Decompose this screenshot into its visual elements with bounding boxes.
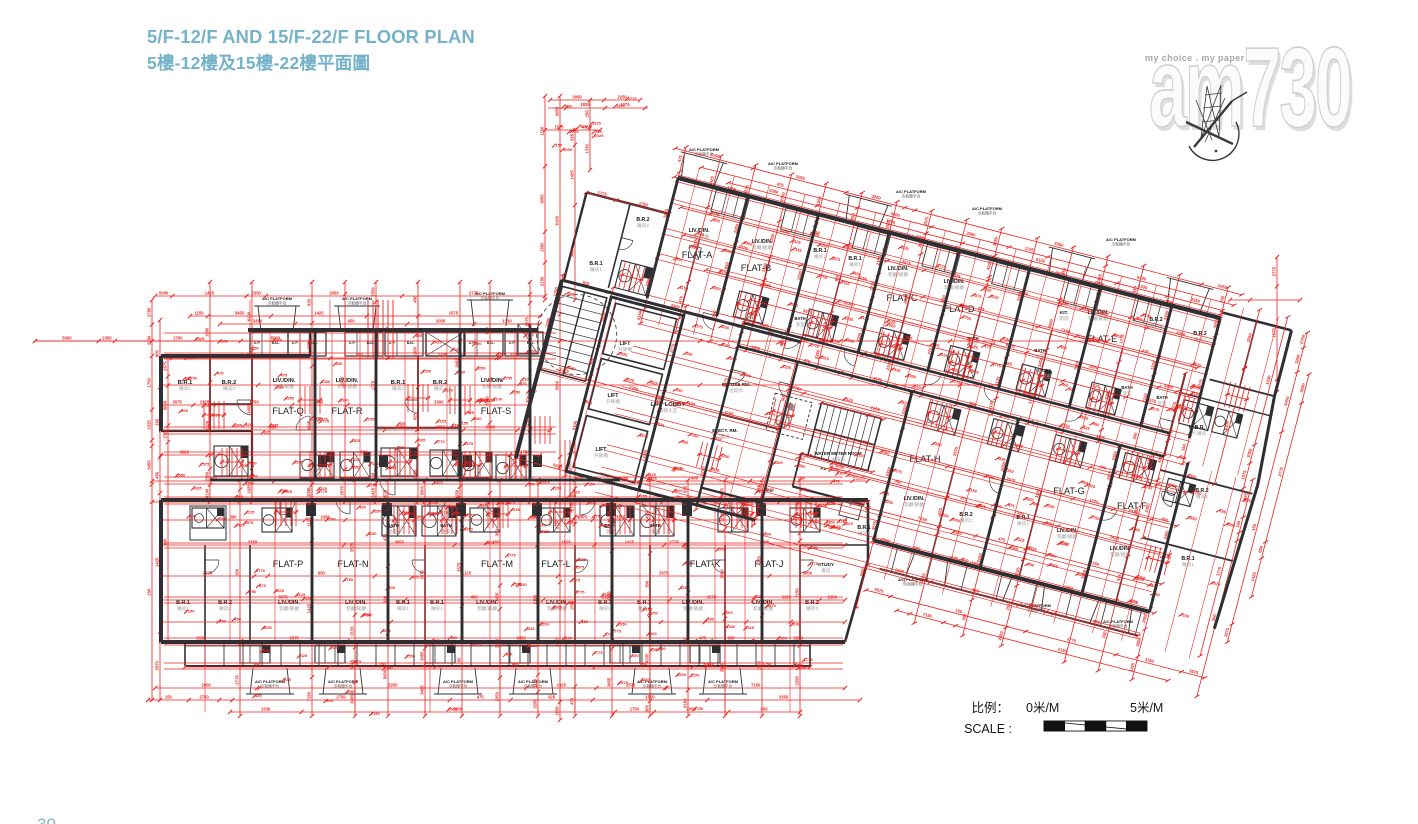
svg-text:客廳/飯廳: 客廳/飯廳 (1057, 533, 1077, 540)
svg-text:925: 925 (284, 677, 291, 682)
svg-text:3575: 3575 (349, 542, 354, 552)
svg-text:2775: 2775 (256, 568, 266, 573)
svg-text:1825: 1825 (195, 336, 205, 341)
svg-text:1550: 1550 (351, 464, 361, 469)
svg-text:2575: 2575 (200, 462, 210, 467)
svg-text:1750: 1750 (344, 577, 354, 582)
svg-text:1750: 1750 (249, 399, 259, 404)
svg-text:客廳/飯廳: 客廳/飯廳 (888, 271, 908, 278)
svg-text:BAL.: BAL. (487, 341, 495, 345)
svg-text:300: 300 (644, 580, 649, 588)
svg-text:FLAT-Q: FLAT-Q (272, 406, 303, 416)
svg-text:2575: 2575 (571, 577, 581, 582)
svg-text:2575: 2575 (524, 316, 529, 326)
svg-text:6100: 6100 (246, 311, 251, 321)
svg-text:2050: 2050 (436, 318, 446, 323)
svg-text:1425: 1425 (405, 511, 415, 516)
svg-text:1550: 1550 (204, 327, 209, 337)
svg-text:450: 450 (412, 295, 417, 303)
svg-text:1150: 1150 (249, 474, 258, 479)
svg-text:1550: 1550 (406, 654, 416, 659)
svg-text:4335: 4335 (306, 420, 311, 430)
svg-text:客廳/飯廳: 客廳/飯廳 (279, 605, 299, 612)
svg-text:3575: 3575 (466, 513, 476, 518)
svg-text:450: 450 (219, 618, 226, 623)
svg-text:A/C PLATFORM: A/C PLATFORM (972, 206, 1003, 211)
svg-text:925: 925 (412, 412, 417, 420)
svg-text:1425: 1425 (433, 340, 443, 345)
svg-text:5000: 5000 (724, 610, 734, 615)
svg-text:3250: 3250 (285, 395, 295, 400)
svg-text:3250: 3250 (477, 366, 487, 371)
svg-text:浴室: 浴室 (388, 528, 398, 535)
svg-text:3575: 3575 (659, 570, 669, 575)
svg-text:2750: 2750 (146, 307, 151, 317)
svg-text:3250: 3250 (382, 628, 392, 633)
svg-text:300: 300 (494, 529, 499, 537)
svg-text:3300: 3300 (434, 399, 444, 404)
svg-text:1775: 1775 (507, 552, 517, 557)
svg-text:3350: 3350 (346, 689, 356, 694)
svg-text:300: 300 (506, 652, 513, 657)
svg-text:U.P.: U.P. (254, 341, 261, 345)
svg-text:睡房1: 睡房1 (392, 385, 404, 392)
svg-text:1775: 1775 (318, 489, 328, 494)
svg-text:睡房2: 睡房2 (637, 222, 649, 229)
svg-text:升降機: 升降機 (594, 452, 608, 459)
svg-text:1825: 1825 (580, 102, 590, 107)
svg-text:30: 30 (37, 815, 56, 824)
svg-text:3300: 3300 (273, 337, 283, 342)
svg-text:1825: 1825 (351, 438, 361, 443)
svg-text:900: 900 (359, 504, 366, 509)
svg-text:1550: 1550 (412, 346, 417, 356)
svg-text:925: 925 (245, 422, 252, 427)
svg-text:1150: 1150 (444, 387, 453, 392)
svg-text:2325: 2325 (528, 643, 538, 648)
svg-text:3455: 3455 (540, 529, 550, 534)
svg-text:2775: 2775 (594, 650, 604, 655)
svg-text:5000: 5000 (382, 669, 387, 679)
svg-text:A/C PLATFORM: A/C PLATFORM (262, 296, 293, 301)
svg-text:2750: 2750 (173, 335, 183, 340)
svg-text:925: 925 (580, 124, 587, 129)
svg-text:0米/M: 0米/M (1026, 701, 1059, 715)
svg-text:FLAT-P: FLAT-P (273, 559, 303, 569)
svg-text:900: 900 (253, 661, 261, 666)
svg-text:2155: 2155 (577, 557, 587, 562)
svg-text:3455: 3455 (448, 706, 458, 711)
svg-text:A/C PLATFORM: A/C PLATFORM (896, 189, 927, 194)
svg-text:3455: 3455 (419, 685, 424, 695)
svg-text:3350: 3350 (779, 694, 789, 699)
svg-text:5000: 5000 (803, 570, 813, 575)
svg-text:150: 150 (234, 568, 239, 576)
svg-text:睡房1: 睡房1 (590, 266, 602, 273)
svg-text:BATH: BATH (794, 316, 805, 321)
svg-text:2575: 2575 (574, 514, 584, 519)
svg-text:475: 475 (477, 694, 485, 699)
svg-text:3050: 3050 (479, 397, 489, 402)
svg-text:1825: 1825 (561, 539, 571, 544)
svg-text:450: 450 (348, 318, 356, 323)
svg-text:1825: 1825 (275, 588, 285, 593)
svg-text:A/C PLATFORM: A/C PLATFORM (1106, 237, 1137, 242)
svg-text:BATH: BATH (1121, 385, 1132, 390)
svg-text:475: 475 (569, 697, 574, 705)
svg-text:150: 150 (632, 653, 639, 658)
svg-text:3250: 3250 (532, 699, 537, 709)
svg-text:2155: 2155 (643, 607, 653, 612)
svg-text:5/F-12/F AND 15/F-22/F FLOOR P: 5/F-12/F AND 15/F-22/F FLOOR PLAN (147, 26, 475, 47)
svg-text:300: 300 (189, 514, 196, 519)
svg-text:2350: 2350 (370, 287, 375, 297)
svg-text:3575: 3575 (339, 485, 344, 495)
svg-text:6100: 6100 (554, 215, 559, 225)
svg-text:2250: 2250 (794, 675, 799, 685)
svg-text:150: 150 (399, 421, 406, 426)
svg-text:1125: 1125 (246, 510, 255, 515)
svg-text:150: 150 (556, 143, 563, 148)
svg-text:2155: 2155 (437, 418, 447, 423)
svg-text:2775: 2775 (809, 561, 819, 566)
svg-text:2350: 2350 (422, 369, 432, 374)
svg-text:1825: 1825 (647, 472, 657, 477)
svg-text:2155: 2155 (511, 507, 521, 512)
svg-text:2775: 2775 (1271, 266, 1276, 276)
svg-text:3300: 3300 (473, 416, 483, 421)
svg-text:2155: 2155 (638, 494, 648, 499)
svg-text:7150: 7150 (794, 588, 799, 598)
svg-text:1550: 1550 (540, 622, 550, 627)
svg-text:3575: 3575 (767, 603, 777, 608)
svg-text:2155: 2155 (349, 626, 354, 636)
svg-text:3350: 3350 (616, 514, 626, 519)
svg-text:6100: 6100 (648, 631, 658, 636)
svg-text:475: 475 (280, 372, 287, 377)
svg-text:客廳/飯廳: 客廳/飯廳 (683, 605, 703, 612)
svg-text:1575: 1575 (449, 310, 459, 315)
svg-text:3300: 3300 (497, 351, 507, 356)
svg-text:450: 450 (154, 471, 159, 479)
svg-text:2250: 2250 (618, 622, 628, 627)
svg-text:3300: 3300 (233, 422, 243, 427)
svg-text:書房: 書房 (821, 567, 831, 574)
svg-text:am730: am730 (1149, 24, 1351, 150)
svg-text:1775: 1775 (436, 439, 446, 444)
svg-text:3455: 3455 (349, 694, 354, 704)
svg-text:冷氣機平台: 冷氣機平台 (902, 194, 921, 199)
svg-text:150: 150 (154, 418, 159, 426)
svg-text:2325: 2325 (595, 133, 605, 138)
svg-text:2250: 2250 (384, 665, 394, 670)
svg-text:300: 300 (707, 617, 714, 622)
svg-text:1575: 1575 (554, 124, 564, 129)
svg-text:1125: 1125 (839, 518, 848, 523)
svg-text:2775: 2775 (576, 590, 586, 595)
svg-text:925: 925 (306, 298, 311, 306)
svg-text:300: 300 (230, 514, 238, 519)
svg-text:客廳/飯廳: 客廳/飯廳 (482, 383, 502, 390)
svg-text:150: 150 (252, 346, 259, 351)
svg-text:U.P.: U.P. (349, 341, 356, 345)
svg-text:5000: 5000 (62, 335, 72, 340)
svg-text:150: 150 (165, 694, 173, 699)
svg-text:7150: 7150 (306, 691, 311, 701)
svg-text:450: 450 (708, 663, 715, 668)
svg-text:KIT.: KIT. (1060, 310, 1068, 315)
svg-text:冷氣機平台: 冷氣機平台 (1112, 242, 1131, 247)
svg-text:BAL.: BAL. (407, 341, 415, 345)
svg-text:650: 650 (475, 341, 482, 346)
svg-text:2575: 2575 (162, 361, 167, 371)
svg-text:150: 150 (581, 619, 588, 624)
svg-text:3575: 3575 (553, 604, 563, 609)
svg-text:3250: 3250 (373, 509, 383, 514)
svg-text:2775: 2775 (669, 539, 679, 544)
svg-text:4335: 4335 (387, 465, 397, 470)
svg-text:3350: 3350 (567, 520, 577, 525)
svg-text:925: 925 (548, 694, 556, 699)
svg-text:1125: 1125 (532, 678, 537, 688)
svg-text:2350: 2350 (651, 647, 661, 652)
svg-text:650: 650 (185, 376, 192, 381)
svg-text:3250: 3250 (677, 672, 687, 677)
svg-text:1575: 1575 (1271, 327, 1276, 337)
svg-text:2155: 2155 (366, 417, 376, 422)
svg-text:1330: 1330 (584, 143, 589, 153)
svg-text:FLAT-R: FLAT-R (332, 406, 363, 416)
svg-text:900: 900 (162, 538, 167, 546)
svg-text:A/C PLATFORM: A/C PLATFORM (443, 679, 474, 684)
svg-text:300: 300 (659, 646, 666, 651)
svg-text:3250: 3250 (363, 612, 373, 617)
svg-text:3455: 3455 (606, 677, 611, 687)
svg-text:2325: 2325 (283, 489, 293, 494)
svg-text:3455: 3455 (419, 651, 424, 661)
svg-text:2050: 2050 (416, 514, 426, 519)
svg-text:1750: 1750 (630, 706, 640, 711)
svg-text:2150: 2150 (204, 471, 209, 481)
svg-text:1330: 1330 (518, 582, 528, 587)
svg-text:3575: 3575 (244, 520, 254, 525)
svg-text:2575: 2575 (575, 565, 585, 570)
svg-text:睡房2: 睡房2 (219, 605, 231, 612)
svg-text:睡房1: 睡房1 (849, 261, 861, 268)
svg-text:A/C PLATFORM: A/C PLATFORM (689, 147, 720, 152)
svg-text:A/C PLATFORM: A/C PLATFORM (768, 161, 799, 166)
svg-text:7150: 7150 (371, 711, 381, 716)
svg-text:1750: 1750 (593, 513, 603, 518)
svg-text:3350: 3350 (253, 318, 263, 323)
svg-text:1330: 1330 (502, 318, 512, 323)
svg-text:1075: 1075 (620, 102, 630, 107)
svg-text:浴室: 浴室 (441, 528, 451, 535)
svg-text:2325: 2325 (745, 625, 755, 630)
svg-text:3455: 3455 (235, 310, 245, 315)
svg-text:1750: 1750 (146, 377, 151, 387)
svg-text:1775: 1775 (320, 418, 330, 423)
svg-text:2350: 2350 (494, 691, 499, 701)
svg-text:浴室: 浴室 (795, 321, 805, 328)
svg-text:客廳/飯廳: 客廳/飯廳 (752, 244, 772, 251)
svg-text:150: 150 (146, 588, 151, 596)
svg-text:1425: 1425 (370, 487, 375, 497)
svg-text:2325: 2325 (557, 682, 567, 687)
svg-text:2750: 2750 (327, 517, 337, 522)
svg-text:475: 475 (217, 371, 224, 376)
svg-text:客廳/飯廳: 客廳/飯廳 (477, 605, 497, 612)
svg-text:U.P.: U.P. (509, 341, 516, 345)
svg-text:4335: 4335 (193, 485, 203, 490)
svg-text:450: 450 (234, 617, 241, 622)
svg-text:1425: 1425 (351, 457, 361, 462)
svg-text:7150: 7150 (751, 682, 761, 687)
svg-text:3350: 3350 (248, 539, 258, 544)
svg-text:3050: 3050 (395, 539, 405, 544)
svg-text:睡房1: 睡房1 (179, 385, 191, 392)
svg-text:2775: 2775 (469, 290, 479, 295)
svg-text:3575: 3575 (294, 460, 304, 465)
svg-text:2150: 2150 (602, 592, 612, 597)
svg-text:浴室: 浴室 (1157, 400, 1167, 407)
svg-text:1775: 1775 (306, 486, 311, 496)
svg-text:5米/M: 5米/M (1130, 701, 1163, 715)
svg-text:U.P.: U.P. (292, 341, 299, 345)
svg-text:2350: 2350 (252, 290, 262, 295)
svg-text:2350: 2350 (774, 460, 784, 465)
svg-text:2325: 2325 (146, 419, 151, 429)
svg-text:650: 650 (318, 570, 326, 575)
svg-text:A/C PLATFORM: A/C PLATFORM (1103, 619, 1134, 624)
svg-text:2775: 2775 (234, 675, 239, 685)
svg-text:900: 900 (691, 475, 699, 480)
svg-text:5樓-12樓及15樓-22樓平面圖: 5樓-12樓及15樓-22樓平面圖 (147, 53, 370, 73)
svg-text:1150: 1150 (553, 485, 562, 490)
svg-text:3050: 3050 (484, 452, 489, 462)
svg-text:客廳/飯廳: 客廳/飯廳 (904, 501, 924, 508)
svg-text:睡房1: 睡房1 (397, 605, 409, 612)
svg-text:廚房: 廚房 (1059, 315, 1069, 322)
svg-text:3575: 3575 (464, 441, 474, 446)
svg-text:1330: 1330 (261, 706, 271, 711)
svg-text:1550: 1550 (717, 547, 727, 552)
svg-text:3250: 3250 (794, 501, 799, 511)
svg-text:1125: 1125 (297, 592, 306, 597)
svg-text:睡房1: 睡房1 (431, 605, 443, 612)
svg-text:2150: 2150 (368, 531, 378, 536)
svg-text:1150: 1150 (194, 310, 204, 315)
svg-text:2150: 2150 (539, 276, 544, 286)
svg-text:1425: 1425 (569, 170, 574, 180)
svg-text:150: 150 (219, 516, 226, 521)
svg-text:1825: 1825 (592, 121, 602, 126)
svg-text:300: 300 (644, 704, 649, 712)
svg-text:2775: 2775 (628, 96, 638, 101)
svg-text:STORE: STORE (1037, 368, 1052, 373)
svg-text:3050: 3050 (539, 194, 544, 204)
svg-text:450: 450 (255, 693, 262, 698)
svg-text:電梯大堂: 電梯大堂 (659, 407, 678, 414)
svg-text:3455: 3455 (146, 460, 151, 470)
svg-text:3250: 3250 (762, 661, 772, 666)
svg-text:3050: 3050 (248, 461, 258, 466)
svg-text:客廳/飯廳: 客廳/飯廳 (944, 284, 964, 291)
svg-text:900: 900 (154, 349, 159, 357)
svg-text:3300: 3300 (340, 398, 350, 403)
svg-text:2775: 2775 (203, 570, 213, 575)
svg-text:650: 650 (640, 661, 648, 666)
svg-text:1425: 1425 (625, 539, 635, 544)
svg-text:2775: 2775 (570, 129, 580, 134)
svg-text:1425: 1425 (314, 310, 324, 315)
svg-text:FLAT-N: FLAT-N (338, 559, 369, 569)
svg-text:2250: 2250 (261, 648, 271, 653)
svg-text:6100: 6100 (682, 698, 687, 708)
svg-text:冷氣機平台: 冷氣機平台 (978, 211, 997, 216)
svg-text:1425: 1425 (298, 653, 308, 658)
svg-text:300: 300 (451, 635, 458, 640)
svg-text:3455: 3455 (569, 247, 574, 257)
svg-text:2250: 2250 (203, 403, 213, 408)
svg-text:冷氣機平台: 冷氣機平台 (268, 301, 287, 306)
svg-text:睡房2: 睡房2 (806, 605, 818, 612)
svg-text:SCALE :: SCALE : (964, 722, 1012, 736)
svg-text:3050: 3050 (572, 94, 582, 99)
svg-text:925: 925 (467, 410, 474, 415)
svg-text:垃圾房: 垃圾房 (729, 387, 743, 394)
svg-text:1575: 1575 (382, 489, 387, 499)
svg-text:1330: 1330 (321, 379, 331, 384)
svg-text:1330: 1330 (726, 624, 736, 629)
svg-text:睡房1: 睡房1 (599, 605, 611, 612)
svg-text:1330: 1330 (641, 677, 651, 682)
svg-text:my choice . my paper: my choice . my paper (1145, 53, 1245, 63)
svg-text:475: 475 (833, 479, 840, 484)
svg-text:2750: 2750 (336, 694, 346, 699)
svg-text:1550: 1550 (511, 389, 521, 394)
svg-text:1550: 1550 (539, 242, 544, 252)
svg-text:2050: 2050 (201, 682, 211, 687)
svg-text:1775: 1775 (804, 657, 814, 662)
svg-text:475: 475 (259, 583, 266, 588)
svg-text:2150: 2150 (691, 673, 701, 678)
svg-text:900: 900 (326, 698, 333, 703)
svg-text:1575: 1575 (486, 540, 496, 545)
svg-text:2750: 2750 (794, 663, 804, 668)
svg-text:4335: 4335 (526, 626, 536, 631)
svg-text:2250: 2250 (617, 94, 627, 99)
svg-text:2050: 2050 (329, 290, 339, 295)
svg-text:浴室: 浴室 (650, 528, 660, 535)
svg-text:2750: 2750 (199, 694, 209, 699)
svg-text:3050: 3050 (719, 569, 724, 579)
svg-text:U.P.: U.P. (389, 341, 396, 345)
svg-text:2150: 2150 (368, 482, 378, 487)
svg-text:5000: 5000 (159, 290, 169, 295)
svg-text:3250: 3250 (388, 682, 398, 687)
svg-text:3575: 3575 (172, 399, 182, 404)
svg-text:睡房1: 睡房1 (814, 253, 826, 260)
svg-text:FLAT-K: FLAT-K (690, 559, 721, 569)
svg-text:925: 925 (416, 333, 423, 338)
svg-text:6100: 6100 (791, 622, 801, 627)
svg-text:FLAT-A: FLAT-A (682, 250, 713, 260)
svg-text:7150: 7150 (186, 609, 196, 614)
svg-text:5000: 5000 (419, 485, 424, 495)
svg-text:3300: 3300 (600, 522, 610, 527)
svg-text:冷氣機平台: 冷氣機平台 (348, 301, 367, 306)
